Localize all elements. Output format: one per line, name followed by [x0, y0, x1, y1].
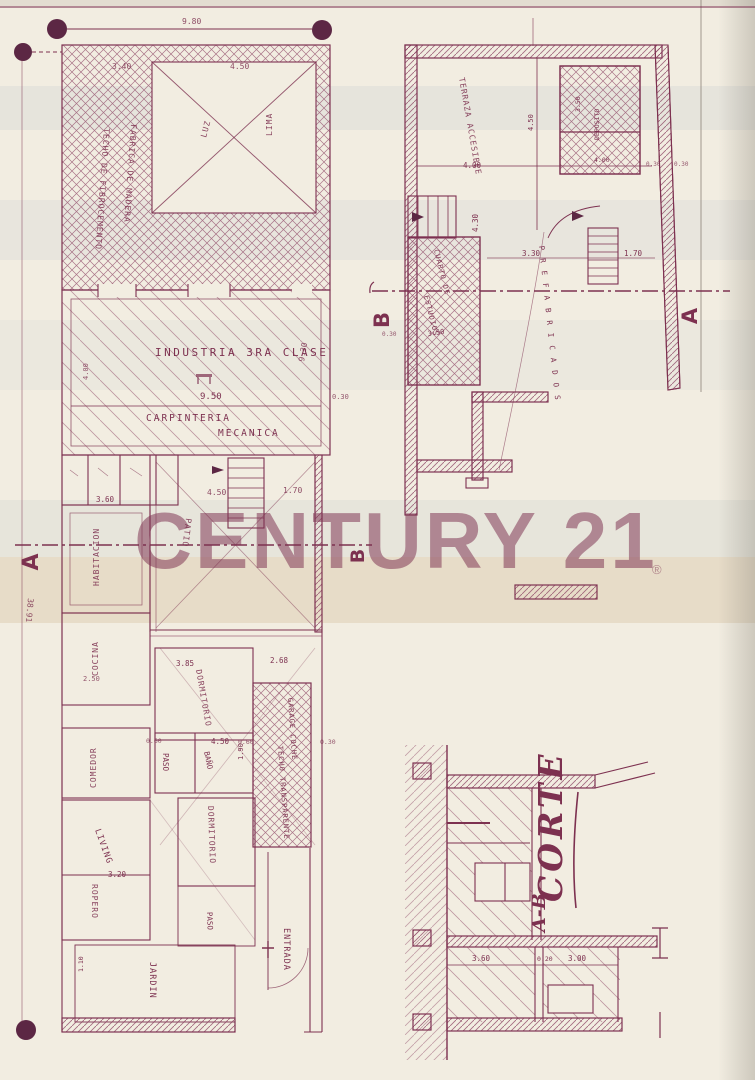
dim-060-b: 0.60 [146, 737, 162, 745]
dim-030-c: 0.30 [382, 331, 397, 338]
dim-268: 2.68 [270, 656, 289, 665]
dim-430: 4.30 [471, 213, 480, 232]
dim-340: 3.40 [112, 62, 131, 71]
marker-b-upper: B [370, 312, 394, 328]
corte-dim-020: 0.20 [537, 955, 553, 963]
dim-450-top: 4.50 [230, 62, 249, 71]
dim-450-upper: 4.50 [527, 114, 535, 131]
label-comedor: COMEDOR [89, 747, 98, 788]
dim-170: 1.70 [283, 486, 302, 495]
label-entrada: ENTRADA [281, 928, 291, 971]
dim-030-b: 0.30 [320, 738, 336, 746]
label-paso-2: PASO [205, 912, 215, 931]
blueprint-page: 9.80 38.91 [0, 0, 755, 1080]
label-carpinteria: CARPINTERIA [146, 413, 231, 424]
century21-watermark: CENTURY 21 ® [134, 496, 662, 585]
dim-360: 3.60 [96, 495, 115, 504]
label-dormitorio-1: DORMITORIO [194, 669, 213, 728]
label-habitacion: HABITACION [92, 528, 101, 586]
dim-250: 2.50 [83, 675, 100, 683]
dim-400-terraza: 4.00 [463, 161, 482, 170]
corte-sheet: A-B [528, 893, 550, 934]
dim-030: 0.30 [332, 393, 349, 401]
corte-title: CORTE [531, 750, 570, 902]
label-mecanica: MECANICA [218, 428, 280, 439]
dim-030-r2: 0.30 [674, 161, 689, 168]
dim-110: 1.10 [77, 956, 85, 972]
label-lima: LIMA [265, 113, 274, 136]
label-paso-1: PASO [161, 753, 170, 772]
label-cocina: COCINA [91, 641, 100, 676]
dim-front-width: 9.80 [182, 17, 201, 26]
label-ropero: ROPERO [90, 884, 99, 919]
label-dormitorio-2: DORMITORIO [206, 806, 217, 864]
dim-950: 9.50 [200, 392, 222, 402]
label-deposito: DEPOSITO [593, 109, 601, 140]
marker-a-upper: A [678, 307, 702, 324]
marker-a-ground: A [19, 553, 44, 570]
corte-dim-360: 3.60 [472, 954, 491, 963]
dim-450-med: 4.50 [211, 737, 230, 746]
dim-350-deposito: 3.50 [574, 96, 582, 112]
corte-dim-300: 3.00 [568, 954, 587, 963]
label-living: LIVING [92, 828, 114, 866]
floor-plan-svg: 9.80 38.91 [0, 0, 755, 1080]
dim-170-upper: 1.70 [624, 249, 643, 258]
dim-400-side: 4.00 [82, 363, 90, 380]
dim-320: 3.20 [108, 870, 127, 879]
dim-030-r1: 0.30 [646, 161, 661, 168]
label-bano: BAÑO [202, 751, 215, 771]
watermark-registered-icon: ® [652, 562, 662, 577]
watermark-text: CENTURY 21 [134, 496, 657, 585]
dim-385: 3.85 [176, 659, 194, 668]
dim-190: 1.90 [237, 743, 245, 760]
label-jardin: JARDIN [147, 962, 157, 999]
dim-400-deposito: 4.00 [594, 156, 610, 164]
